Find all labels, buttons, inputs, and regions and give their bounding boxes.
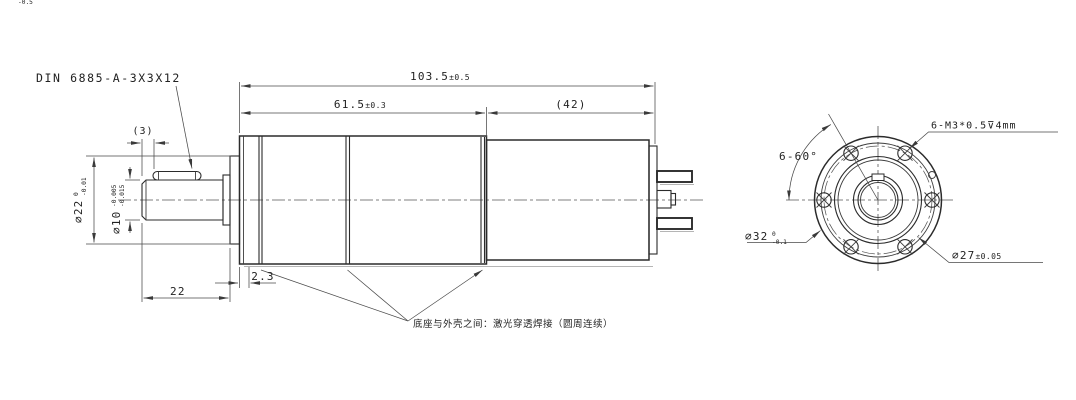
weld-note: 底座与外壳之间：激光穿透焊接（圆周连续） [413, 318, 613, 330]
side-view [118, 136, 706, 267]
gearmotor-drawing: DIN 6885-A-3X3X12 (3) 103.5±0.5 61.5±0.3… [0, 0, 1076, 400]
svg-text:⌀10-0.005-0.015: ⌀10-0.005-0.015 [110, 184, 126, 234]
terminal-tab-bottom [657, 218, 692, 229]
extension-lines [86, 82, 655, 302]
dim-flange-dia: ⌀320-0.1 [745, 230, 787, 246]
key-spec-label: DIN 6885-A-3X3X12 [36, 71, 181, 85]
dim-total-length: 103.5±0.5 [410, 70, 470, 83]
end-view [786, 114, 954, 274]
dim-shaft-length: 220-0.5 [18, 0, 186, 298]
terminal-tab-top [657, 171, 692, 182]
tap-spec-label: 6-M3*0.5⊽4mm [931, 121, 1017, 132]
svg-text:⌀220-0.01: ⌀220-0.01 [72, 177, 88, 223]
weld-note-leaders [261, 270, 483, 321]
shaft-key [153, 172, 201, 181]
dim-gearbox-length: 61.5±0.3 [334, 98, 386, 111]
dim-shaft-dia: ⌀10-0.005-0.015 [110, 184, 126, 234]
key-end-lines [159, 172, 196, 181]
dim-hole-angle: 6-60° [779, 150, 818, 163]
tap-spec-leader [910, 132, 1059, 149]
dim-boss-dia: ⌀220-0.01 [72, 177, 88, 223]
rear-shaft-tip [671, 194, 676, 206]
engineering-drawing-canvas: DIN 6885-A-3X3X12 (3) 103.5±0.5 61.5±0.3… [0, 0, 1076, 400]
dim-plate-thickness: 2.3 [251, 270, 274, 283]
dim-key-pos: (3) [132, 126, 153, 137]
rear-bearing-boss [657, 191, 671, 209]
dim-motor-length: (42) [555, 98, 586, 111]
side-view-dimensions: DIN 6885-A-3X3X12 (3) 103.5±0.5 61.5±0.3… [18, 0, 655, 330]
dim-bolt-circle: ⌀27±0.05 [952, 249, 1002, 262]
keyway [872, 174, 884, 181]
